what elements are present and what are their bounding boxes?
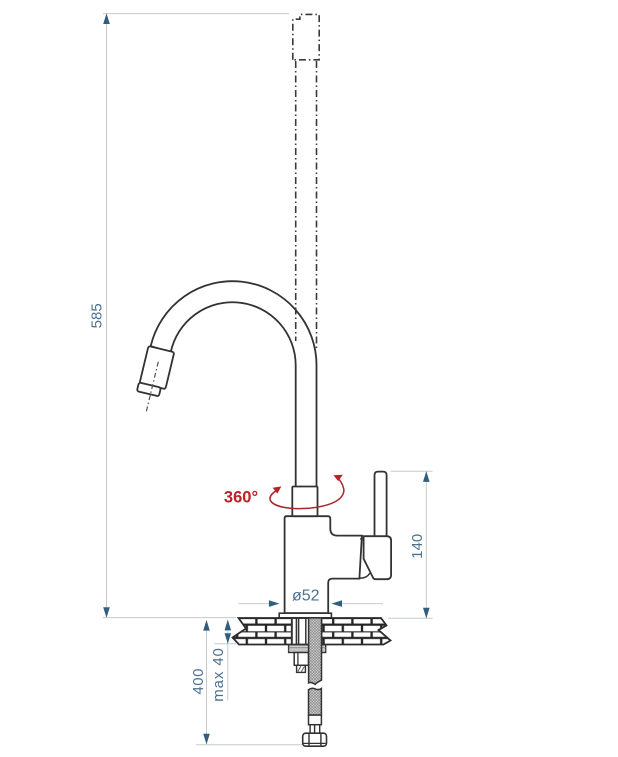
svg-text:400: 400 <box>190 668 207 695</box>
svg-text:ø52: ø52 <box>292 587 320 604</box>
svg-text:140: 140 <box>409 534 426 559</box>
svg-text:585: 585 <box>88 303 105 328</box>
svg-text:360°: 360° <box>224 489 258 507</box>
svg-text:max 40: max 40 <box>210 647 227 702</box>
